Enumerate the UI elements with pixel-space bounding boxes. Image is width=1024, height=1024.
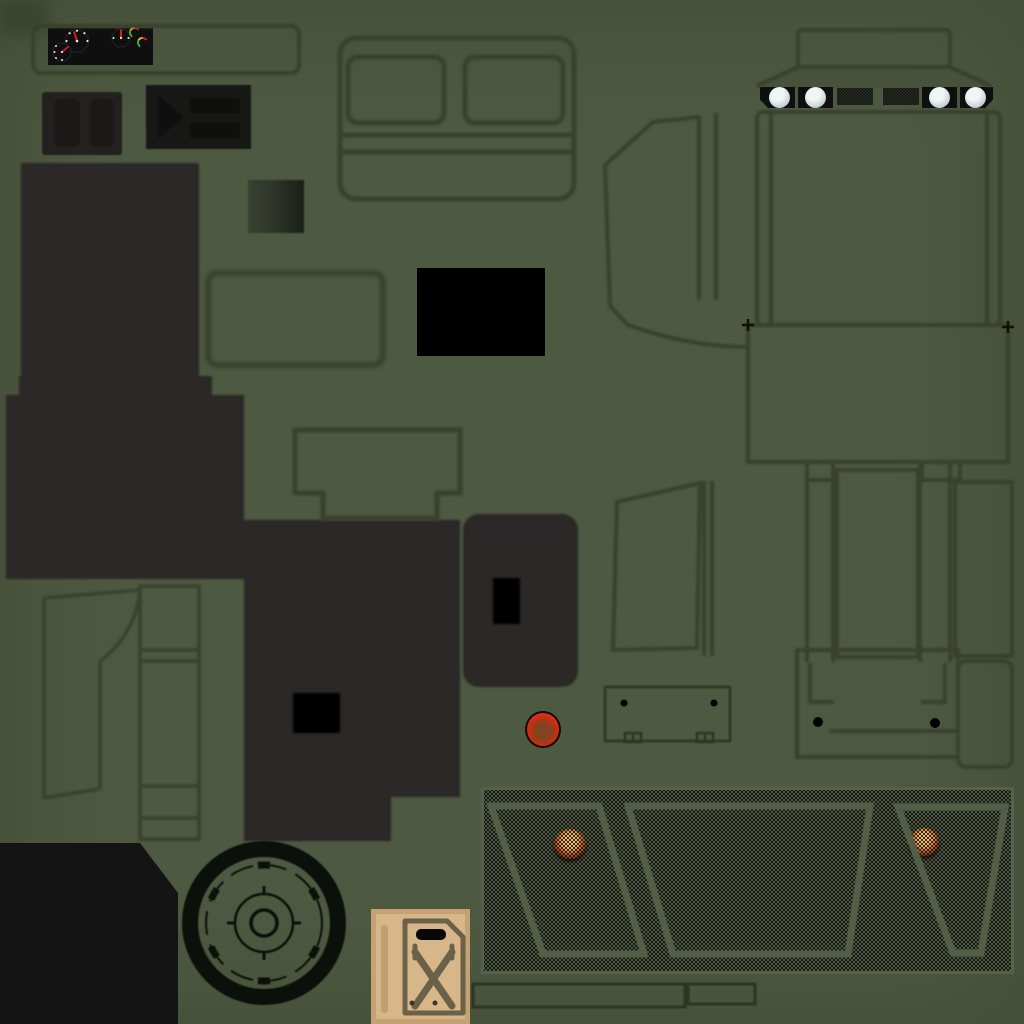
wheel-rim	[190, 849, 338, 997]
wheel-hub-ring	[235, 894, 293, 952]
steering-wheel	[0, 0, 1024, 1024]
wheel-hub-ticks	[227, 886, 301, 960]
wheel-inner-ring	[206, 865, 322, 981]
wheel-center	[251, 910, 277, 936]
texture-atlas-sheet	[0, 0, 1024, 1024]
wheel-ring-ticks	[200, 859, 327, 986]
